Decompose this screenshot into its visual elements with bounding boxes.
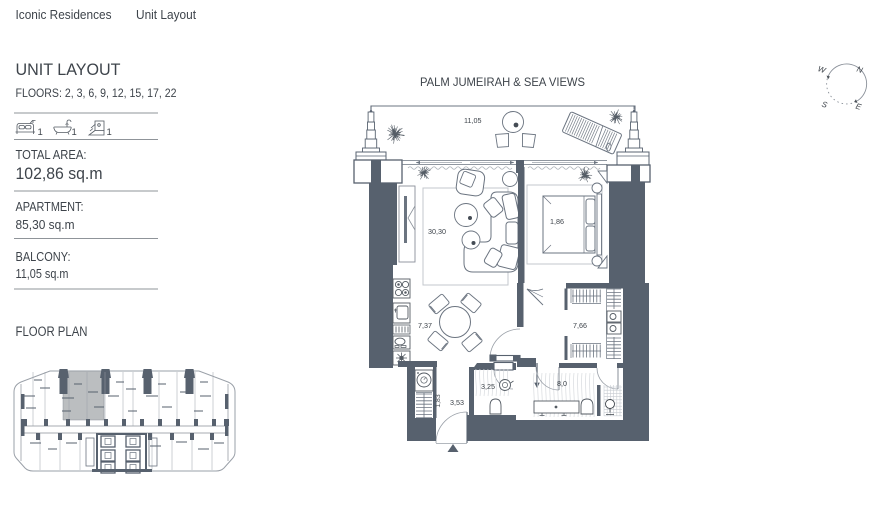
svg-text:1: 1 — [38, 127, 43, 138]
svg-text:8,0: 8,0 — [557, 379, 567, 388]
svg-text:11,05: 11,05 — [464, 116, 481, 125]
svg-text:APARTMENT:: APARTMENT: — [16, 200, 84, 214]
svg-text:7,37: 7,37 — [418, 321, 432, 330]
svg-text:102,86 sq.m: 102,86 sq.m — [16, 164, 103, 183]
svg-text:1: 1 — [107, 127, 112, 138]
svg-text:1: 1 — [72, 127, 77, 138]
svg-text:FLOORS: 2, 3, 6, 9, 12, 15, 17: FLOORS: 2, 3, 6, 9, 12, 15, 17, 22 — [16, 86, 177, 100]
svg-text:3,53: 3,53 — [450, 398, 464, 407]
svg-text:7,66: 7,66 — [573, 321, 587, 330]
svg-text:11,05 sq.m: 11,05 sq.m — [16, 266, 69, 281]
svg-text:BALCONY:: BALCONY: — [16, 250, 71, 264]
svg-text:85,30 sq.m: 85,30 sq.m — [16, 217, 75, 232]
svg-text:1,86: 1,86 — [550, 217, 564, 226]
svg-text:3,25: 3,25 — [481, 382, 495, 391]
svg-text:1,83: 1,83 — [435, 394, 442, 407]
svg-text:30,30: 30,30 — [428, 227, 446, 236]
svg-text:TOTAL AREA:: TOTAL AREA: — [16, 148, 87, 162]
svg-text:UNIT LAYOUT: UNIT LAYOUT — [16, 60, 121, 79]
svg-text:Iconic Residences: Iconic Residences — [16, 8, 112, 22]
svg-text:FLOOR PLAN: FLOOR PLAN — [16, 324, 88, 339]
svg-text:Unit Layout: Unit Layout — [136, 8, 196, 22]
svg-text:PALM JUMEIRAH & SEA VIEWS: PALM JUMEIRAH & SEA VIEWS — [420, 75, 585, 89]
